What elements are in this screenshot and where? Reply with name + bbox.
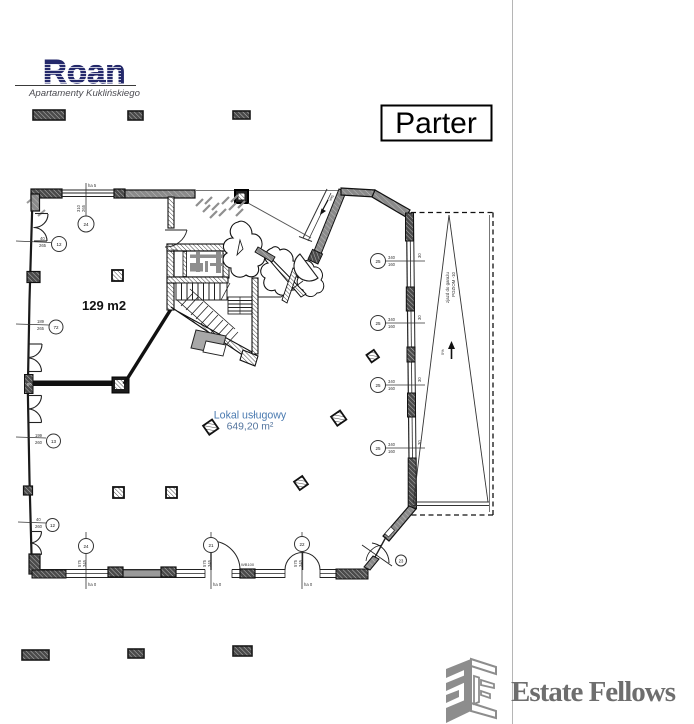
svg-text:649,20 m²: 649,20 m²: [227, 422, 274, 433]
svg-text:30: 30: [417, 440, 422, 445]
svg-text:40: 40: [36, 517, 41, 522]
svg-text:ha 0: ha 0: [213, 582, 222, 587]
svg-text:23: 23: [399, 559, 404, 564]
svg-text:Roan: Roan: [43, 53, 126, 90]
svg-text:265: 265: [37, 326, 45, 331]
svg-text:265: 265: [81, 204, 86, 212]
svg-text:129 m2: 129 m2: [82, 298, 126, 313]
svg-text:25: 25: [375, 383, 381, 388]
svg-text:340: 340: [388, 317, 396, 322]
svg-text:30: 30: [417, 377, 422, 382]
svg-text:Estate Fellows: Estate Fellows: [511, 676, 676, 708]
svg-text:160: 160: [388, 386, 396, 391]
svg-text:21: 21: [208, 543, 214, 548]
svg-text:340: 340: [388, 442, 396, 447]
svg-text:260: 260: [35, 440, 43, 445]
svg-text:ha 0: ha 0: [304, 582, 313, 587]
svg-text:25: 25: [375, 259, 381, 264]
svg-text:30: 30: [417, 315, 422, 320]
svg-text:189: 189: [37, 319, 45, 324]
svg-text:POZIOM -10: POZIOM -10: [451, 271, 456, 296]
svg-text:160: 160: [388, 262, 396, 267]
svg-text:5%: 5%: [440, 349, 445, 355]
svg-text:Lokal usługowy: Lokal usługowy: [214, 410, 287, 422]
svg-text:Parter: Parter: [395, 107, 477, 140]
svg-text:22: 22: [299, 542, 305, 547]
svg-text:160: 160: [388, 324, 396, 329]
svg-text:WB100: WB100: [241, 562, 255, 567]
svg-text:12: 12: [50, 523, 56, 528]
svg-text:340: 340: [388, 379, 396, 384]
svg-text:ha 0: ha 0: [88, 582, 97, 587]
svg-text:260: 260: [35, 524, 43, 529]
svg-text:340: 340: [388, 255, 396, 260]
svg-text:345: 345: [298, 559, 303, 567]
svg-text:ha 5: ha 5: [88, 183, 97, 188]
svg-text:30: 30: [417, 253, 422, 258]
svg-text:265: 265: [39, 243, 47, 248]
svg-text:72: 72: [53, 325, 59, 330]
svg-text:60: 60: [27, 382, 32, 387]
svg-text:24: 24: [83, 222, 89, 227]
svg-text:13: 13: [51, 439, 57, 444]
svg-text:25: 25: [375, 446, 381, 451]
svg-text:345: 345: [82, 559, 87, 567]
svg-text:12: 12: [56, 242, 62, 247]
svg-text:345: 345: [207, 559, 212, 567]
svg-text:zjazd do garażu: zjazd do garażu: [445, 271, 450, 303]
svg-text:40: 40: [40, 236, 45, 241]
svg-text:25: 25: [375, 321, 381, 326]
svg-text:160: 160: [388, 449, 396, 454]
svg-text:199: 199: [35, 433, 43, 438]
svg-text:Apartamenty Kuklińskiego: Apartamenty Kuklińskiego: [28, 88, 141, 99]
svg-text:24: 24: [83, 544, 89, 549]
